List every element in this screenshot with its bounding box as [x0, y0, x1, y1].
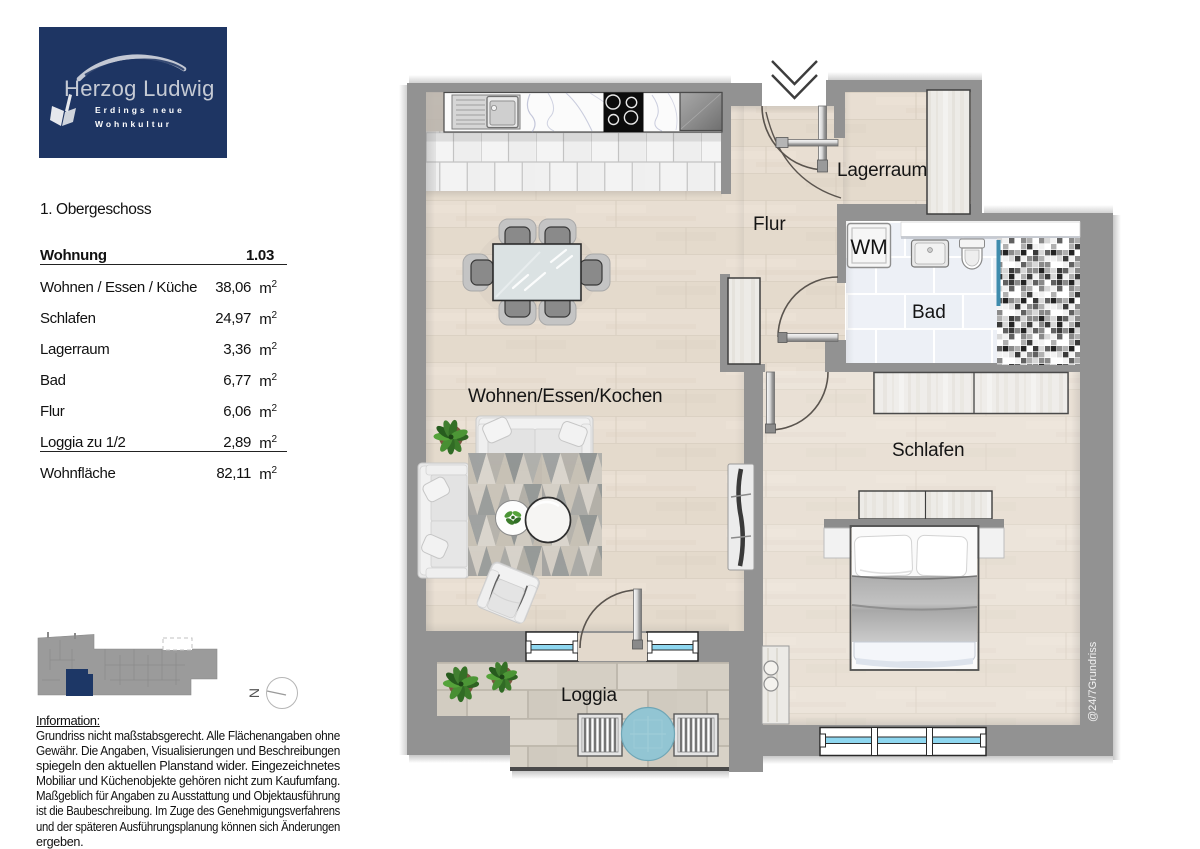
svg-text:Bad: Bad — [912, 302, 946, 323]
svg-text:Wohnen/Essen/Kochen: Wohnen/Essen/Kochen — [468, 386, 662, 407]
svg-text:WM: WM — [850, 236, 887, 259]
svg-text:Schlafen: Schlafen — [892, 440, 964, 461]
svg-text:Loggia: Loggia — [561, 685, 617, 706]
svg-text:Lagerraum: Lagerraum — [837, 160, 927, 181]
svg-text:@24/7Grundriss: @24/7Grundriss — [1087, 641, 1099, 722]
svg-text:Flur: Flur — [753, 214, 786, 235]
